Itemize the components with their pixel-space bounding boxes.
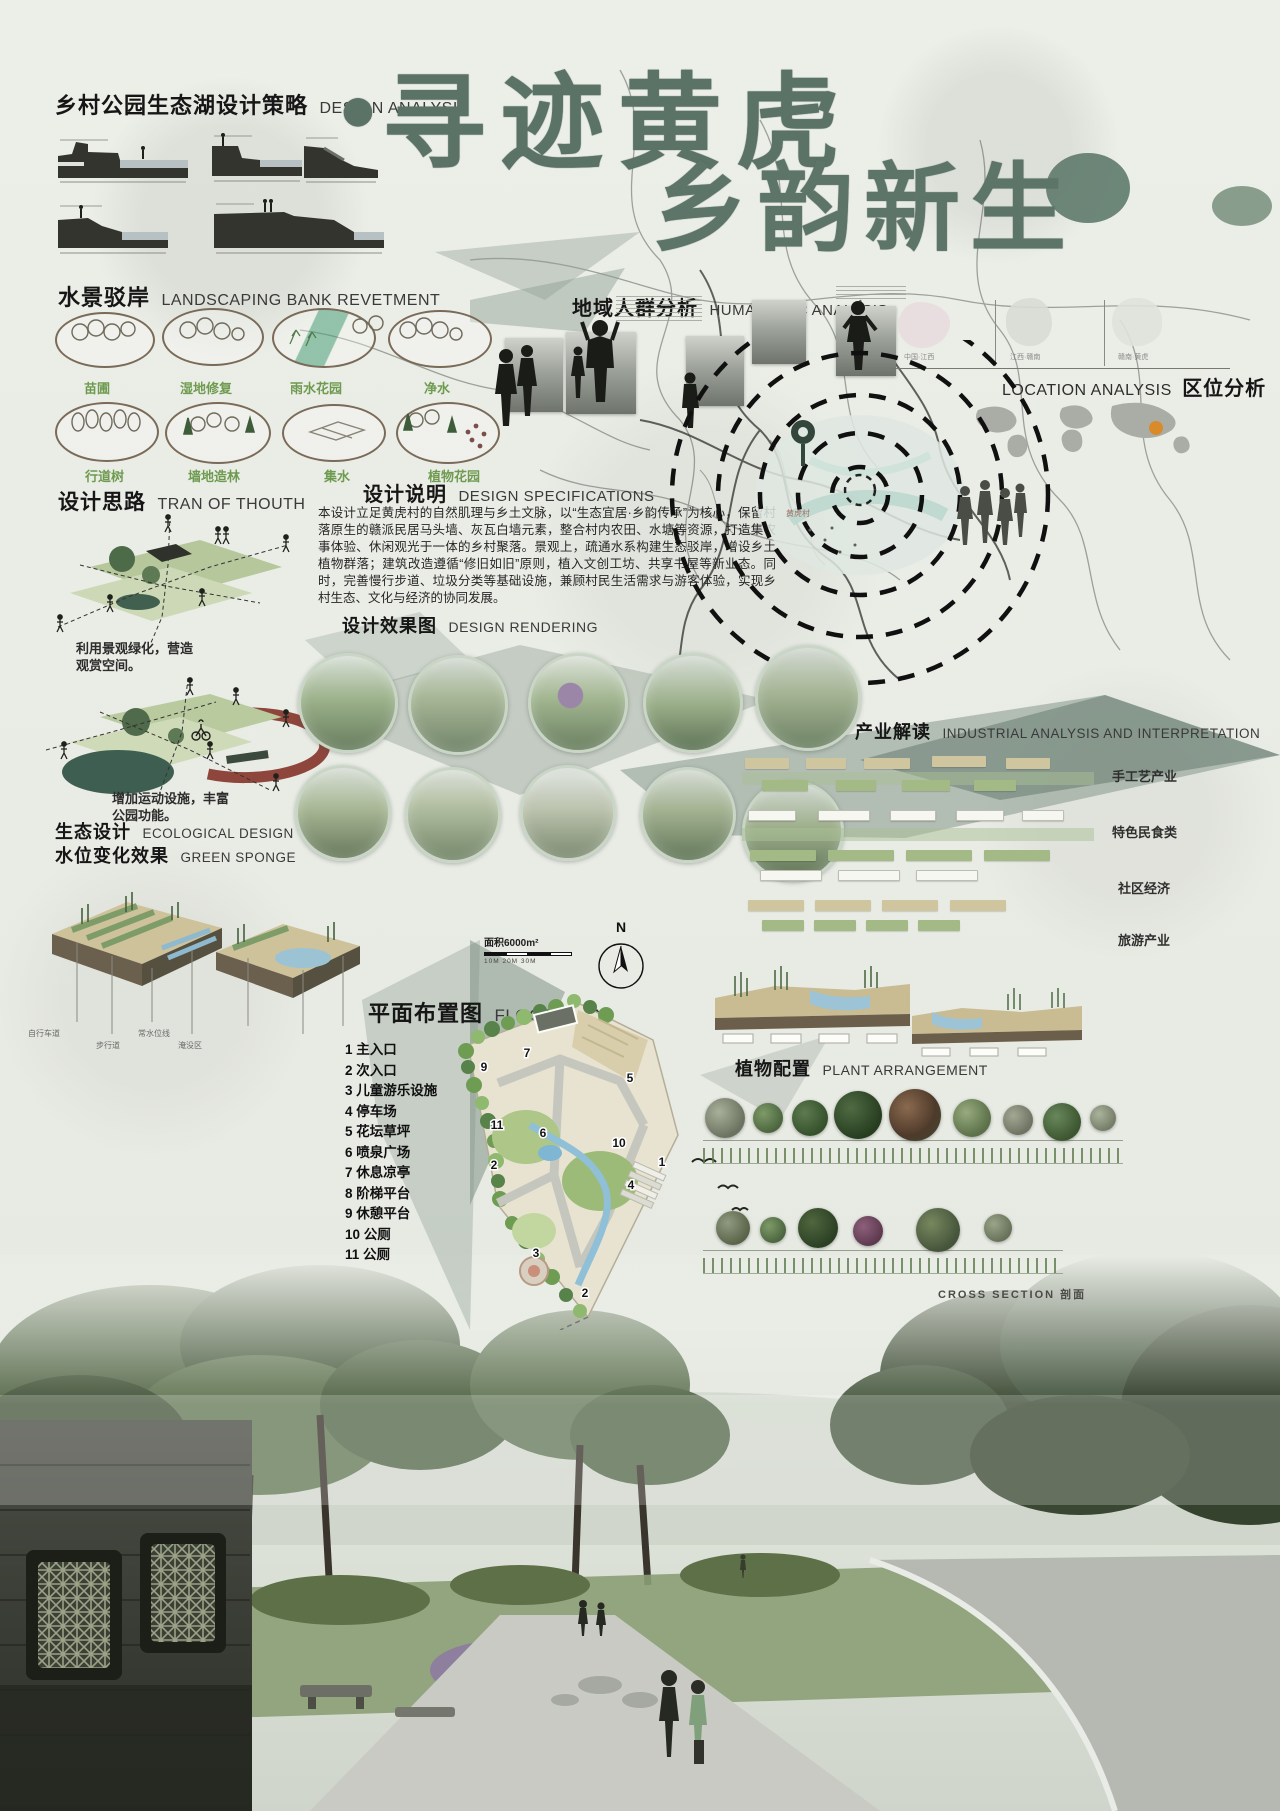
svg-text:2: 2 xyxy=(582,1286,589,1300)
legend-item: 8 阶梯平台 xyxy=(345,1184,437,1205)
green-sponge-diagram-1 xyxy=(42,872,232,1062)
rendering-photo xyxy=(520,765,616,861)
sponge-tag: 自行车道 xyxy=(28,1028,60,1039)
minimap-jiangxi xyxy=(1006,298,1052,346)
plant-arrangement-heading: 植物配置 PLANT ARRANGEMENT xyxy=(735,1055,988,1081)
thought-diagram-1 xyxy=(50,505,305,650)
flow-box xyxy=(902,780,950,791)
scale-labels: 10M 20M 30M xyxy=(484,958,572,965)
svg-text:5: 5 xyxy=(627,1071,634,1085)
flow-box xyxy=(890,810,936,821)
flow-box xyxy=(762,920,804,931)
plant-photo xyxy=(716,1211,750,1245)
revetment-label: 苗圃 xyxy=(84,378,110,397)
legend-item: 6 喷泉广场 xyxy=(345,1143,437,1164)
revetment-label: 湿地修复 xyxy=(180,378,232,397)
plan-pond xyxy=(538,1145,562,1161)
heading-zh: 乡村公园生态湖设计策略 xyxy=(55,93,308,118)
legend-item: 10 公厕 xyxy=(345,1225,437,1246)
revetment-sketches-row1 xyxy=(60,314,490,364)
plant-photo xyxy=(1003,1105,1033,1135)
revetment-label: 行道树 xyxy=(85,466,124,485)
legend-item: 4 停车场 xyxy=(345,1102,437,1123)
rendering-photo xyxy=(528,653,628,753)
flow-box xyxy=(956,810,1004,821)
revetment-label: 雨水花园 xyxy=(290,378,342,397)
revetment-sketches-row2 xyxy=(60,406,500,460)
flow-box xyxy=(836,780,876,791)
flow-band xyxy=(742,828,1094,841)
location-highlight xyxy=(1149,421,1163,435)
plant-photo xyxy=(853,1216,883,1246)
revetment-label: 净水 xyxy=(424,378,450,397)
plant-section-strip xyxy=(703,1258,1063,1274)
flow-box xyxy=(750,850,816,861)
minimap-divider xyxy=(1104,300,1105,366)
sponge-tag: 淹没区 xyxy=(178,1040,202,1051)
floor-plan-legend: 1 主入口 2 次入口 3 儿童游乐设施 4 停车场 5 花坛草坪 6 喷泉广场… xyxy=(345,1040,437,1266)
ecological-heading-2: 水位变化效果 GREEN SPONGE xyxy=(55,842,296,868)
svg-text:2: 2 xyxy=(491,1158,498,1172)
poster-title-line2: 乡韵新生 xyxy=(652,162,1076,258)
flow-box xyxy=(1022,810,1064,821)
svg-text:9: 9 xyxy=(481,1060,488,1074)
industry-label: 手工艺产业 xyxy=(1112,766,1177,785)
minimap-gannan xyxy=(1112,298,1162,346)
poster-canvas: 乡村公园生态湖设计策略 DESIGN ANALYSIS ●寻迹黄虎 乡韵新生 水… xyxy=(0,0,1280,1811)
rendering-photo xyxy=(755,645,861,751)
svg-text:6: 6 xyxy=(540,1126,547,1140)
flow-box xyxy=(882,900,938,911)
flow-box xyxy=(748,900,804,911)
flow-box xyxy=(818,810,870,821)
rendering-photo xyxy=(295,765,391,861)
plant-photo xyxy=(1090,1105,1116,1131)
plant-photo xyxy=(953,1099,991,1137)
legend-item: 7 休息凉亭 xyxy=(345,1163,437,1184)
legend-item: 3 儿童游乐设施 xyxy=(345,1081,437,1102)
plant-photo xyxy=(984,1214,1012,1242)
terrain-section-2 xyxy=(212,124,302,186)
plan-lawn xyxy=(512,1213,556,1249)
svg-text:10: 10 xyxy=(612,1136,626,1150)
terrain-section-4 xyxy=(58,196,168,258)
rendering-photo xyxy=(640,767,736,863)
minimap-label: 赣南·黄虎 xyxy=(1118,352,1148,362)
rendering-photo xyxy=(298,653,398,753)
flow-box xyxy=(1006,758,1050,769)
title-dot: ● xyxy=(338,71,382,145)
plant-photo xyxy=(753,1103,783,1133)
flow-box xyxy=(950,900,1006,911)
industry-label: 社区经济 xyxy=(1118,878,1170,897)
flow-box xyxy=(806,758,846,769)
legend-item: 1 主入口 xyxy=(345,1040,437,1061)
terrain-section-1 xyxy=(58,126,188,186)
svg-text:3: 3 xyxy=(533,1246,540,1260)
industry-label: 特色民食类 xyxy=(1112,822,1177,841)
sponge-tag: 步行道 xyxy=(96,1040,120,1051)
design-specs-heading: 设计说明 DESIGN SPECIFICATIONS xyxy=(363,478,655,507)
flow-box xyxy=(815,900,871,911)
raingarden-section-1 xyxy=(715,956,910,1046)
flow-box xyxy=(984,850,1050,861)
flow-box xyxy=(762,780,808,791)
rendering-photo xyxy=(405,767,501,863)
flow-box xyxy=(760,870,822,881)
site-label: 黄虎村 xyxy=(786,508,810,519)
plant-photo xyxy=(1043,1103,1081,1141)
cross-section-label: CROSS SECTION 剖面 xyxy=(938,1286,1086,1302)
svg-text:4: 4 xyxy=(628,1178,635,1192)
plant-photo xyxy=(760,1217,786,1243)
flow-box xyxy=(745,758,789,769)
scale-bar: 10M 20M 30M xyxy=(484,952,572,965)
people-group xyxy=(952,470,1032,565)
industrial-heading: 产业解读 INDUSTRIAL ANALYSIS AND INTERPRETAT… xyxy=(855,718,1260,744)
flow-box xyxy=(866,920,908,931)
flow-box xyxy=(932,756,986,767)
bank-revetment-heading: 水景驳岸 LANDSCAPING BANK REVETMENT xyxy=(58,280,440,312)
svg-text:11: 11 xyxy=(491,1118,504,1132)
revetment-label: 集水 xyxy=(324,466,350,485)
green-blob xyxy=(1212,186,1272,226)
plant-photo xyxy=(916,1208,960,1252)
legend-item: 2 次入口 xyxy=(345,1061,437,1082)
site-area-label: 面积6000m² xyxy=(484,934,538,949)
flow-box xyxy=(974,780,1016,791)
plant-photo xyxy=(792,1100,828,1136)
flow-box xyxy=(918,920,960,931)
floor-plan-drawing: 9 7 5 11 6 10 1 2 4 3 2 xyxy=(438,985,703,1330)
flow-box xyxy=(748,810,796,821)
flow-box xyxy=(906,850,972,861)
plant-row-line xyxy=(703,1250,1063,1251)
plant-section-strip xyxy=(703,1148,1123,1164)
legend-item: 9 休憩平台 xyxy=(345,1204,437,1225)
legend-item: 11 公厕 xyxy=(345,1245,437,1266)
green-sponge-diagram-2 xyxy=(208,896,368,1046)
sponge-tag: 常水位线 xyxy=(138,1028,170,1039)
svg-text:7: 7 xyxy=(524,1046,531,1060)
design-rendering-heading: 设计效果图 DESIGN RENDERING xyxy=(342,612,598,638)
flow-box xyxy=(828,850,894,861)
plant-photo xyxy=(889,1089,941,1141)
svg-text:1: 1 xyxy=(659,1155,666,1169)
plant-photo xyxy=(705,1098,745,1138)
svg-text:N: N xyxy=(616,919,626,935)
raingarden-section-2 xyxy=(912,980,1082,1058)
plant-photo xyxy=(798,1208,838,1248)
legend-item: 5 花坛草坪 xyxy=(345,1122,437,1143)
flow-box xyxy=(916,870,978,881)
flow-box xyxy=(864,758,910,769)
revetment-label: 墙地造林 xyxy=(188,466,240,485)
thought-caption-1: 利用景观绿化，营造观赏空间。 xyxy=(76,640,193,674)
plant-photo xyxy=(834,1091,882,1139)
rendering-photo xyxy=(643,653,743,753)
terrain-section-5 xyxy=(214,194,384,258)
flow-box xyxy=(814,920,856,931)
industry-label: 旅游产业 xyxy=(1118,930,1170,949)
flow-box xyxy=(838,870,900,881)
rendering-photo xyxy=(408,655,508,755)
ecological-heading-1: 生态设计 ECOLOGICAL DESIGN xyxy=(55,818,294,844)
